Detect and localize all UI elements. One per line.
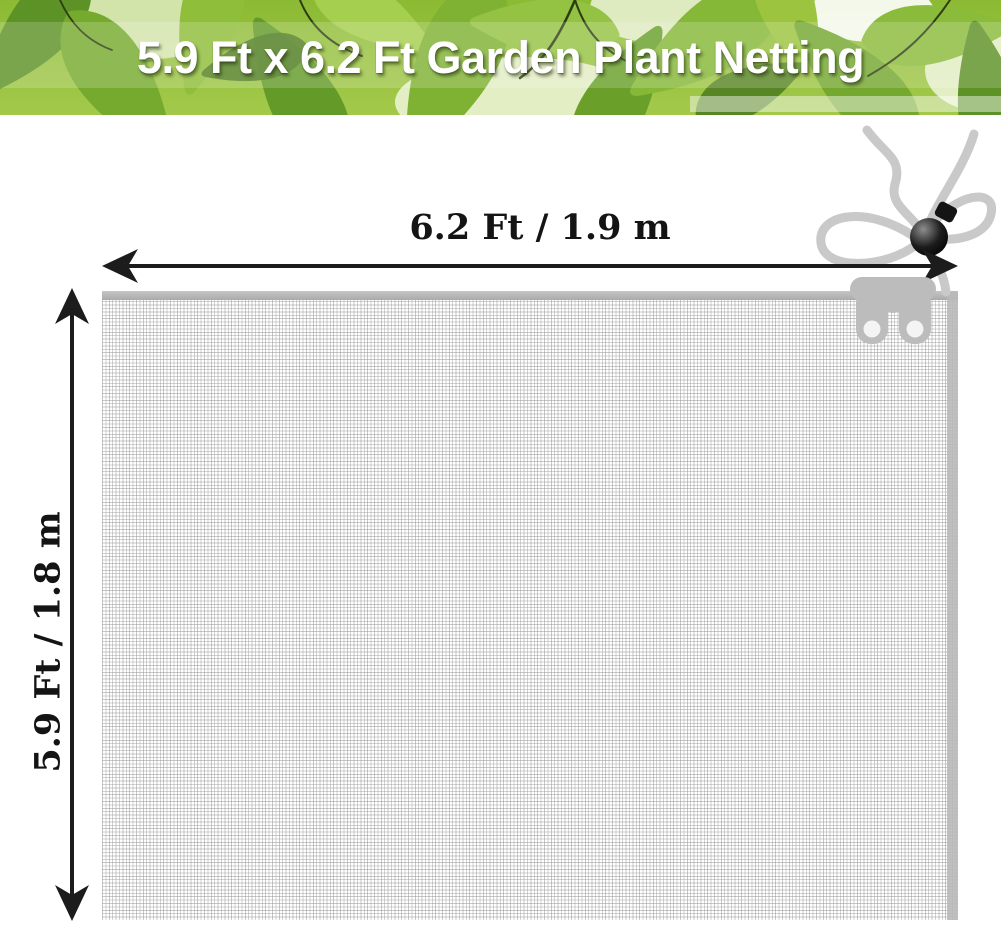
- banner-title: 5.9 Ft x 6.2 Ft Garden Plant Netting: [0, 0, 1001, 115]
- width-dimension-arrow: [102, 249, 958, 283]
- cord-lock-toggle: [910, 200, 959, 256]
- mesh-netting: [102, 291, 958, 920]
- netting-right-hem: [947, 291, 958, 920]
- drawstring-cord: [821, 130, 992, 292]
- width-dimension-label: 6.2 Ft / 1.9 m: [340, 210, 740, 245]
- netting-top-hem: [102, 291, 958, 300]
- title-banner: 5.9 Ft x 6.2 Ft Garden Plant Netting: [0, 0, 1001, 115]
- height-dimension-label: 5.9 Ft / 1.8 m: [31, 511, 66, 772]
- product-image: 5.9 Ft x 6.2 Ft Garden Plant Netting 6.2…: [0, 0, 1001, 925]
